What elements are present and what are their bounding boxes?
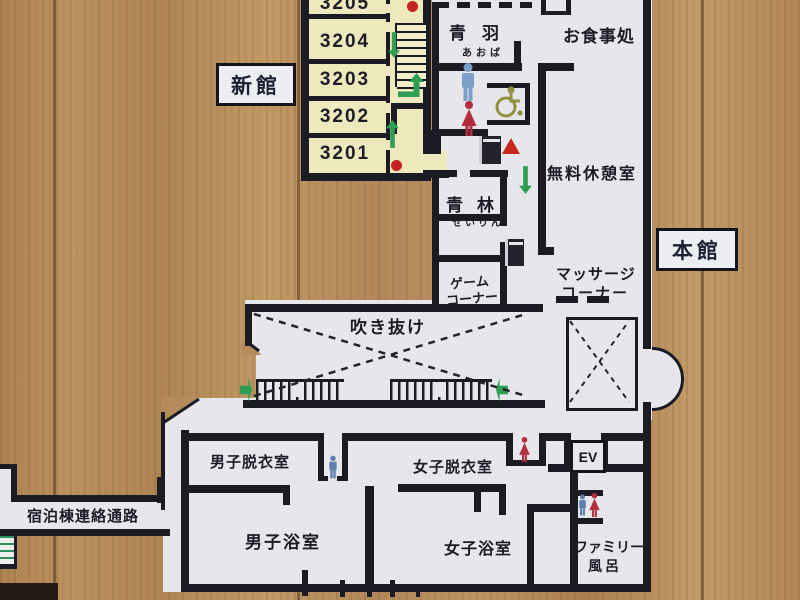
shadow-corner: [0, 583, 58, 600]
mens-toilet-icon: [458, 63, 478, 101]
wall-segment: [348, 433, 508, 441]
route-arrow-icon: [388, 32, 400, 58]
womens-toilet-icon: [517, 437, 532, 462]
room-number: 3203: [315, 69, 375, 91]
wall-segment: [643, 0, 651, 349]
door-gap: [457, 170, 470, 177]
escalator-gap: [438, 382, 446, 397]
area-label-atrium: 吹き抜け: [350, 313, 426, 338]
wall-segment: [301, 96, 390, 101]
wall-segment: [606, 433, 645, 441]
wall-segment: [487, 120, 530, 125]
area-label-mens-changing: 男子脱衣室: [210, 451, 290, 472]
wall-segment: [570, 518, 603, 524]
wall-segment: [643, 402, 651, 592]
staircase-icon: [0, 536, 14, 564]
wall-segment: [14, 495, 164, 502]
area-label-aoba: 青羽: [449, 19, 515, 44]
route-arrow-icon: [398, 73, 424, 103]
wall-segment: [301, 133, 390, 138]
accessible-toilet-icon: [493, 86, 524, 119]
wall-segment: [432, 170, 439, 312]
wall-segment: [398, 484, 506, 492]
wall-segment: [318, 433, 324, 480]
mens-toilet-icon: [327, 455, 339, 479]
area-label-massage-corner: コーナー: [561, 282, 629, 303]
wall-segment: [181, 430, 189, 590]
area-label-family-bath: 風呂: [588, 556, 622, 576]
area-label-mens-bath: 男子浴室: [245, 528, 321, 553]
room-number: 3205: [315, 0, 375, 15]
wall-segment: [416, 584, 420, 597]
door-gap: [385, 66, 391, 76]
wall-segment: [432, 170, 508, 177]
wall-segment: [340, 580, 345, 597]
exit-dot-icon: [407, 1, 418, 12]
wall-segment: [527, 506, 534, 592]
shaft-square: [566, 317, 638, 411]
main-building-plate: 本館: [656, 228, 738, 271]
wall-segment: [0, 529, 170, 536]
wood-plank-seam: [701, 0, 704, 600]
wall-segment: [538, 63, 574, 71]
wall-segment: [157, 477, 165, 503]
door-gap: [385, 22, 391, 32]
wall-segment: [301, 173, 431, 181]
wall-segment: [11, 466, 17, 502]
wall-segment: [182, 433, 319, 441]
area-label-aoba-kana: あおば: [462, 44, 504, 59]
area-label-womens-changing: 女子脱衣室: [413, 456, 493, 477]
wall-segment: [538, 247, 554, 255]
area-label-dining: お食事処: [563, 22, 635, 47]
wall-segment: [245, 304, 543, 312]
exit-dot-icon: [391, 160, 402, 171]
wall-segment: [525, 83, 530, 125]
corridor-label: 宿泊棟連絡通路: [27, 505, 139, 526]
area-label-womens-bath: 女子浴室: [444, 535, 512, 559]
room-number: 3202: [315, 106, 375, 128]
wall-segment: [436, 63, 522, 71]
fire-extinguisher-icon: [502, 138, 520, 154]
door-gap: [385, 103, 391, 113]
wall-segment: [301, 0, 309, 181]
wall-segment: [302, 570, 308, 596]
wall-segment: [365, 486, 374, 586]
wall-segment: [301, 59, 390, 64]
wall-segment: [474, 484, 481, 512]
escalator-gap: [296, 382, 304, 397]
wall-segment: [527, 504, 575, 512]
wall-segment: [390, 580, 395, 597]
wall-segment: [188, 485, 290, 493]
wall-segment: [499, 487, 506, 515]
wall-segment: [342, 433, 348, 480]
wall-segment: [514, 41, 521, 71]
area-label-seirin: 青林: [446, 191, 508, 216]
area-label-seirin-kana: せいりん: [452, 214, 504, 229]
new-building-plate: 新館: [216, 63, 296, 106]
route-arrow-icon: [496, 378, 508, 402]
route-arrow-icon: [519, 165, 532, 195]
area-label-family-bath: ファミリー: [574, 537, 644, 557]
route-arrow-icon: [386, 120, 399, 148]
wall-segment: [437, 255, 503, 262]
elevator-box: EV: [570, 440, 606, 473]
vending-machine-icon: [479, 136, 501, 164]
wall-segment: [283, 485, 290, 505]
wall-segment: [538, 63, 546, 255]
wall-segment: [367, 580, 372, 597]
wall-segment: [0, 564, 17, 569]
wall-segment: [0, 464, 17, 469]
room-number: 3201: [315, 143, 375, 165]
route-arrow-icon: [240, 378, 252, 402]
wall-segment: [541, 11, 571, 15]
area-label-free-rest-room: 無料休憩室: [547, 160, 637, 184]
window-dashed-wall: [436, 2, 532, 8]
womens-toilet-icon: [588, 493, 601, 517]
door-gap: [385, 4, 391, 13]
vending-machine-icon: [505, 239, 524, 266]
area-label-massage-corner: マッサージ: [556, 263, 636, 284]
room-number: 3204: [315, 31, 375, 53]
womens-toilet-icon: [460, 101, 478, 136]
floor-plan-sign-photo: { "sign": { "building_labels": { "new": …: [0, 0, 800, 600]
mens-toilet-icon: [577, 494, 588, 516]
wall-segment: [245, 304, 252, 346]
